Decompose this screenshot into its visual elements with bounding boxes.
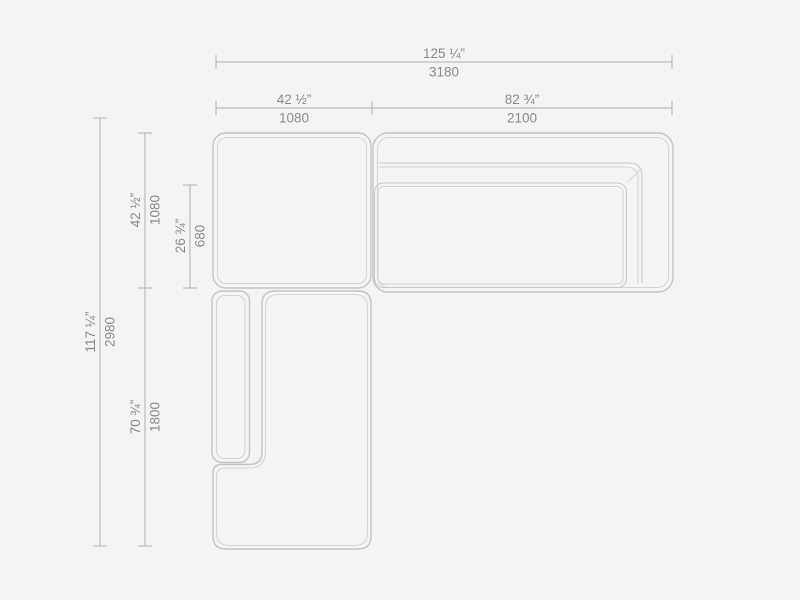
dim-side-lower-inches-label: 70 ¾” [128,400,143,435]
dim-side-seat: 26 ¾” 680 [173,185,208,288]
dim-top-right-inches-label: 82 ¾” [505,92,540,107]
sofa-top-view-svg: 125 ¼” 3180 42 ½” 1080 82 ¾” 2100 117 ¼”… [0,0,800,600]
chaise-armrest-outline [212,291,250,463]
dim-top-right-mm-label: 2100 [507,111,537,126]
dim-top-left: 42 ½” 1080 [216,92,372,126]
ottoman-outline [213,133,371,288]
dim-side-seat-mm-label: 680 [193,225,208,248]
dim-top-left-inches-label: 42 ½” [277,92,312,107]
dim-side-upper-mm-label: 1080 [148,195,163,225]
dim-side-seat-inches-label: 26 ¾” [173,219,188,254]
dim-top-total-mm-label: 3180 [429,65,459,80]
module-chaise-left-arm [212,291,371,549]
module-corner-ottoman [213,133,371,288]
dim-top-right: 82 ¾” 2100 [372,92,672,126]
sofa-dimension-drawing: 125 ¼” 3180 42 ½” 1080 82 ¾” 2100 117 ¼”… [0,0,800,600]
sofa-outline [373,133,673,292]
dim-side-lower: 70 ¾” 1800 [128,288,163,546]
dim-side-total-mm-label: 2980 [103,317,118,347]
dim-side-upper-inches-label: 42 ½” [128,193,143,228]
dim-top-total-inches-label: 125 ¼” [423,46,465,61]
dim-side-lower-mm-label: 1800 [148,402,163,432]
dim-side-total: 117 ¼” 2980 [83,118,118,546]
module-sofa-right-arm [373,133,673,292]
dim-top-left-mm-label: 1080 [279,111,309,126]
dim-top-total: 125 ¼” 3180 [216,46,672,80]
dim-side-upper: 42 ½” 1080 [128,133,163,288]
dim-side-total-inches-label: 117 ¼” [83,311,98,352]
